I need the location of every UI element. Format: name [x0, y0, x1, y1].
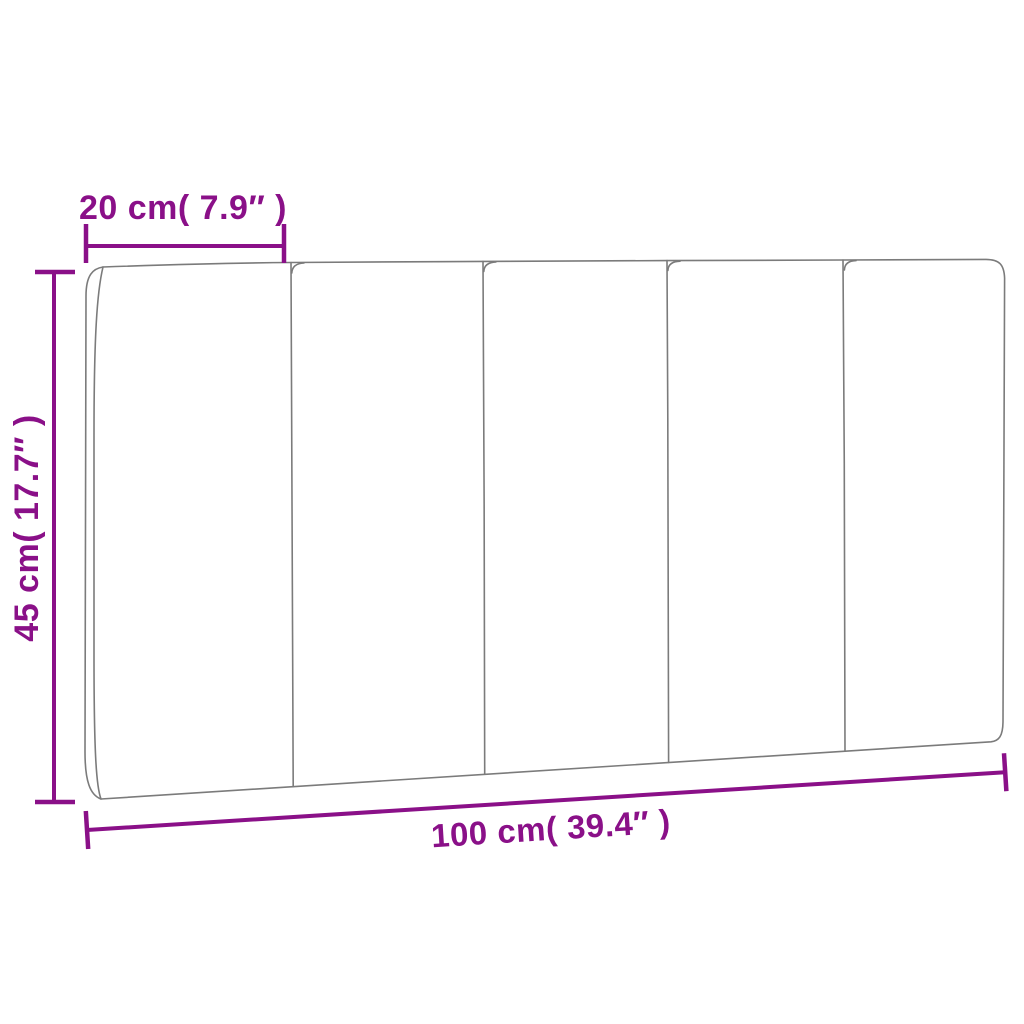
- headboard-outline: [101, 259, 1005, 799]
- height-label: 45 cm( 17.7″ ): [8, 414, 46, 641]
- panel-separator-4: [843, 260, 845, 751]
- panel-separator-1: [291, 263, 293, 787]
- panel-separator-2: [483, 261, 485, 774]
- headboard-cushion-drawing: [85, 259, 1005, 799]
- total-width-dimension: 100 cm( 39.4″ ): [86, 753, 1008, 876]
- total-width-label: 100 cm( 39.4″ ): [430, 802, 672, 854]
- height-dimension: 45 cm( 17.7″ ): [8, 272, 75, 802]
- panel-width-label: 20 cm( 7.9″ ): [79, 189, 287, 227]
- diagram-canvas: 20 cm( 7.9″ ) 45 cm( 17.7″ ) 100 cm( 39.…: [0, 0, 1024, 1024]
- headboard-left-edge: [85, 267, 103, 799]
- panel-width-dimension: 20 cm( 7.9″ ): [79, 189, 287, 263]
- total-width-tick-left: [86, 811, 88, 849]
- dimension-diagram-svg: 20 cm( 7.9″ ) 45 cm( 17.7″ ) 100 cm( 39.…: [0, 0, 1024, 1024]
- total-width-tick-right: [1004, 753, 1006, 791]
- panel-separator-3: [667, 261, 669, 763]
